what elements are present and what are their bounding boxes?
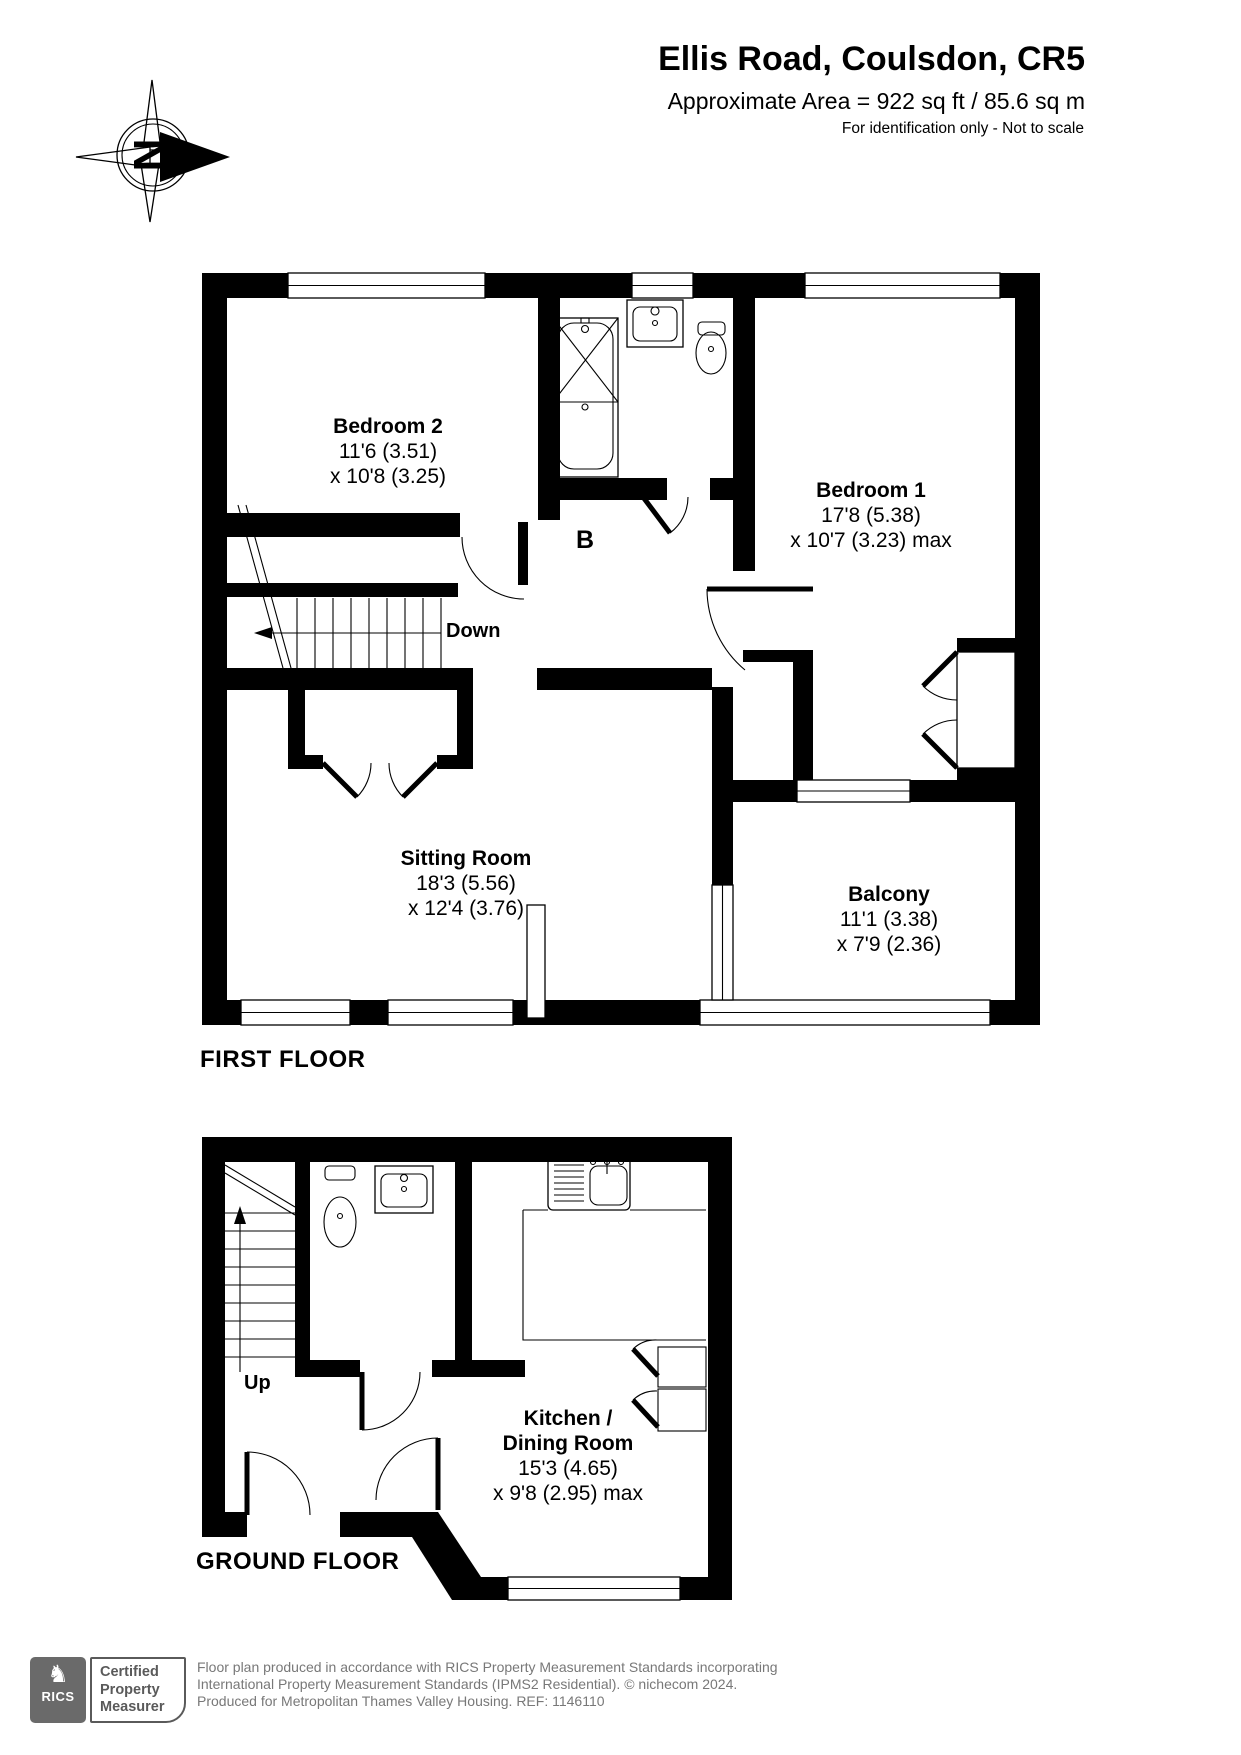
ff-wall [957,638,1015,652]
ff-wall [537,668,712,690]
kitchen-sink-icon [548,1157,630,1210]
gf-wall [310,1360,360,1377]
ff-wall [553,478,667,500]
bedroom1-label: Bedroom 1 17'8 (5.38) x 10'7 (3.23) max [741,478,1001,553]
floorplan-page: { "header": { "title": "Ellis Road, Coul… [0,0,1241,1755]
ff-wall [743,650,813,662]
sitting-room-label: Sitting Room 18'3 (5.56) x 12'4 (3.76) [336,846,596,921]
ff-left-wall [202,273,227,1025]
gf-wall [340,1512,412,1537]
stairs-arrow [234,1206,246,1224]
stairs-up-label: Up [244,1372,271,1395]
ff-wall [957,768,1015,782]
kitchen-label: Kitchen / Dining Room 15'3 (4.65) x 9'8 … [438,1406,698,1506]
rics-lion-icon: ♞ [30,1660,86,1690]
wc-door [362,1372,420,1430]
stairs-up [225,1165,295,1372]
ff-wall [710,478,733,500]
ground-floor-plan [202,1137,732,1600]
front-door [247,1452,310,1515]
balcony-wall [712,687,733,885]
bath-icon [553,318,618,477]
gf-top-wall [202,1137,732,1162]
french-doors [923,652,957,768]
bathroom-label: B [576,526,594,555]
door-alcove [957,652,1015,768]
footer-disclaimer: Floor plan produced in accordance with R… [197,1659,778,1710]
ground-floor-caption: GROUND FLOOR [196,1548,399,1576]
gf-wall [432,1360,472,1377]
basin-icon [627,300,683,347]
compass-letter: N [124,138,176,171]
toilet-icon [324,1166,356,1247]
gf-wall [225,1512,247,1537]
double-door [323,763,437,797]
rics-logo: ♞ RICS [30,1657,86,1723]
balcony-label: Balcony 11'1 (3.38) x 7'9 (2.36) [759,882,1019,957]
disclaimer: For identification only - Not to scale [842,120,1084,138]
ff-wall [457,685,473,763]
ff-wall [227,513,460,537]
certified-property-measurer-badge: Certified Property Measurer [90,1657,186,1723]
first-floor-caption: FIRST FLOOR [200,1046,365,1074]
gf-wall [295,1162,310,1377]
ff-wall [437,755,473,769]
gf-wall [472,1360,525,1377]
ff-wall [288,685,305,763]
basin-icon [375,1166,433,1213]
page-title: Ellis Road, Coulsdon, CR5 [658,40,1085,79]
bedroom2-label: Bedroom 2 11'6 (3.51) x 10'8 (3.25) [258,414,518,489]
bathroom-door [643,497,688,533]
window [288,273,1000,298]
ff-wall [227,668,473,690]
bedroom2-door [462,522,528,599]
glazed-panel [527,905,545,1018]
gf-right-wall [708,1137,732,1600]
area-line: Approximate Area = 922 sq ft / 85.6 sq m [668,88,1085,115]
gf-left-wall [202,1137,225,1537]
hall-door [376,1438,438,1510]
stairs-down-label: Down [446,620,500,643]
ff-wall [288,755,323,769]
compass-icon: N [76,80,230,222]
kitchen-counter [523,1210,706,1340]
stairs-arrow [254,627,272,639]
gf-wall [455,1162,472,1377]
ff-wall [793,662,813,780]
toilet-icon [696,322,726,374]
